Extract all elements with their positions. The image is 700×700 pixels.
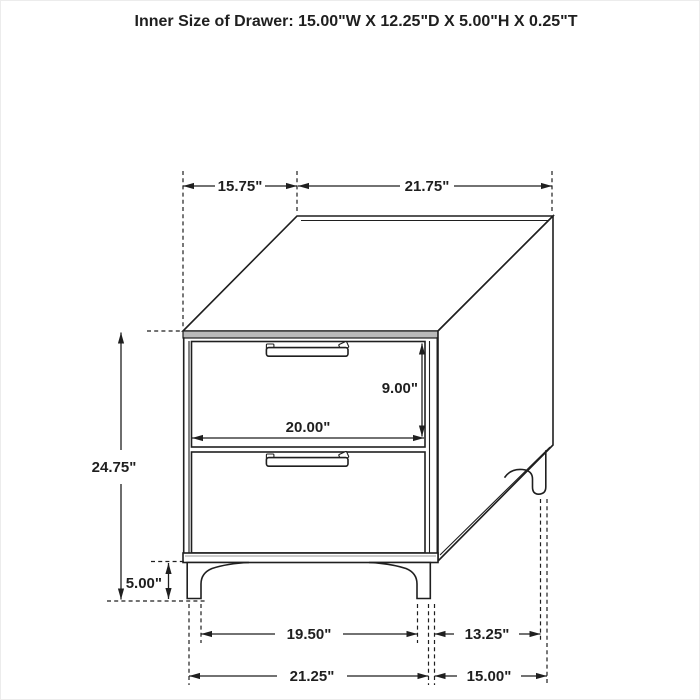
dim-label-front-leg-inner-span: 19.50" — [287, 626, 332, 643]
top-front-edge-band — [183, 331, 438, 338]
dimension-diagram-page: Inner Size of Drawer: 15.00"W X 12.25"D … — [0, 0, 700, 700]
drawing-title: Inner Size of Drawer: 15.00"W X 12.25"D … — [135, 13, 578, 30]
cabinet-bottom-band — [183, 553, 438, 563]
dim-label-overall-height: 24.75" — [92, 459, 137, 476]
dim-label-drawer-width: 20.00" — [286, 419, 331, 436]
dim-label-leg-height: 5.00" — [126, 575, 162, 592]
dim-label-top-width: 21.75" — [405, 178, 450, 195]
dim-label-drawer-height: 9.00" — [382, 380, 418, 397]
front-left-leg — [187, 563, 249, 599]
dim-label-side-leg-span: 13.25" — [465, 626, 510, 643]
nightstand-dimension-diagram: Inner Size of Drawer: 15.00"W X 12.25"D … — [1, 1, 700, 700]
dim-label-front-leg-outer-span: 21.25" — [290, 668, 335, 685]
dim-label-side-outer-span: 15.00" — [467, 668, 512, 685]
cabinet-body — [183, 216, 553, 599]
handle-bar — [266, 458, 348, 467]
handle-bar — [266, 348, 348, 357]
drawer-bottom-front — [192, 452, 426, 553]
front-right-leg — [369, 563, 430, 599]
dim-label-top-depth: 15.75" — [218, 178, 263, 195]
